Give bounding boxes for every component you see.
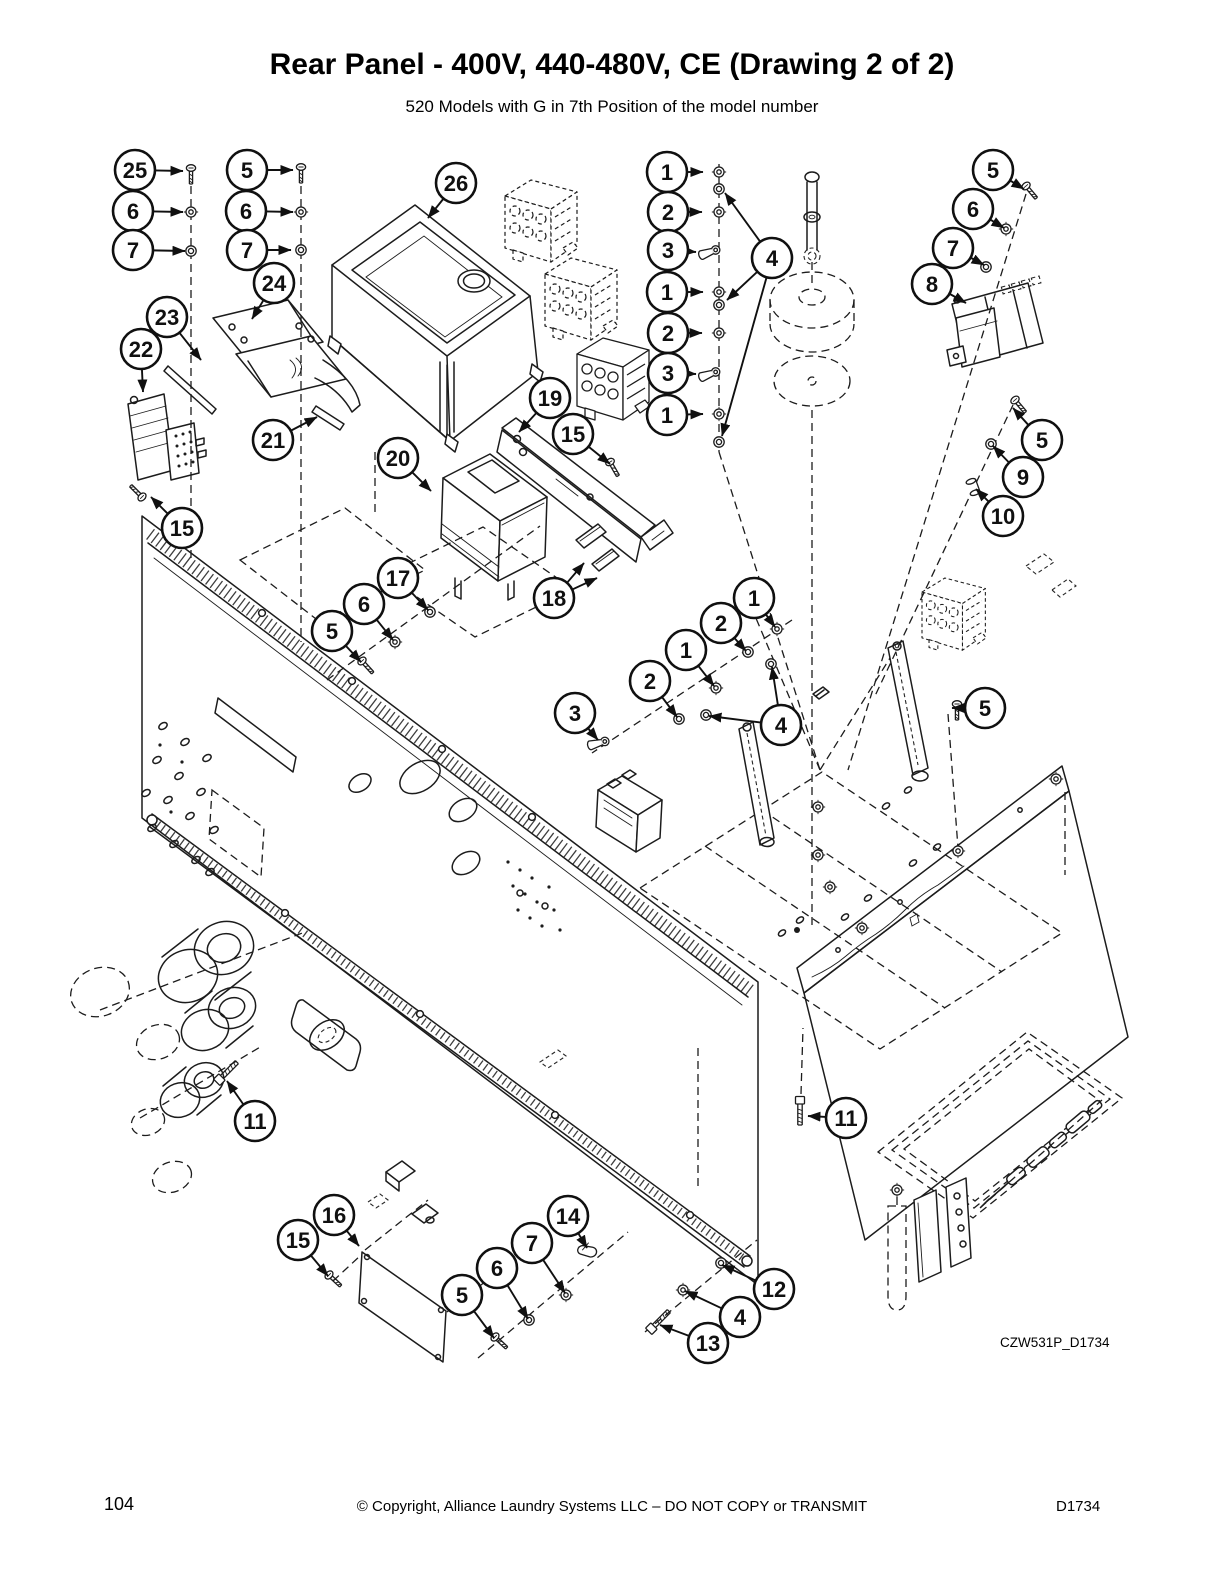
callout-number: 12 [762,1277,786,1302]
callout-leader [151,497,168,514]
callout-leader [428,199,444,218]
callout-number: 5 [326,619,338,644]
callout-leader [722,1265,756,1281]
callout-number: 1 [661,403,673,428]
callout-leader [698,666,714,686]
callout-number: 4 [775,713,788,738]
callout-number: 7 [127,238,139,263]
toroid-filter [770,172,854,406]
callout-number: 22 [129,337,153,362]
callout-number: 1 [661,280,673,305]
callout-number: 2 [662,200,674,225]
callout-leader [567,563,584,583]
callout-leader [990,219,1004,228]
cable-glands [64,913,262,1198]
cover-plate [359,1161,446,1362]
callout-number: 6 [967,197,979,222]
callout-number: 2 [715,611,727,636]
main-rear-panel [142,516,758,1285]
copyright-notice: © Copyright, Alliance Laundry Systems LL… [0,1498,1224,1515]
callout-number: 6 [127,199,139,224]
callout-leader [976,489,989,502]
terminal-block [128,394,206,480]
callout-number: 19 [538,386,562,411]
callout-leader [725,193,760,242]
callout-leader [971,258,984,265]
callout-number: 4 [766,246,779,271]
callout-leader [377,620,393,640]
callout-number: 7 [947,236,959,261]
callout-number: 15 [561,422,585,447]
callout-number: 21 [261,428,285,453]
callout-leader [507,1285,528,1319]
callout-leader [543,1260,565,1293]
callout-number: 25 [123,158,147,183]
callout-leader [1010,180,1024,189]
callout-number: 11 [243,1109,266,1134]
callout-leader [662,697,677,717]
callout-number: 1 [661,160,673,185]
callout-leader [660,1325,689,1336]
callout-leader [153,211,183,212]
callout-leader [685,1291,722,1308]
callout-number: 24 [262,271,287,296]
callout-leader [412,593,428,610]
callout-leader [588,728,598,740]
callout-number: 9 [1017,465,1029,490]
callout-leader [179,333,201,360]
control-transformer [947,276,1043,367]
doc-code: D1734 [1056,1498,1100,1515]
callout-number: 3 [662,238,674,263]
callout-leader [993,446,1009,463]
callout-number: 1 [748,586,760,611]
callout-number: 6 [240,199,252,224]
callout-leader [346,646,361,662]
callout-number: 5 [987,158,999,183]
callout-leader [589,447,610,464]
callout-number: 15 [170,516,194,541]
callout-leader [949,294,966,303]
callout-number: 20 [386,446,410,471]
side-panel [797,766,1128,1240]
callout-leader [227,1081,244,1105]
callout-number: 5 [1036,428,1048,453]
callout-number: 7 [526,1231,538,1256]
callout-number: 4 [734,1305,747,1330]
drawing-code: CZW531P_D1734 [1000,1335,1110,1350]
callout-number: 11 [834,1106,857,1131]
callout-leader [722,277,767,436]
callout-number: 2 [644,669,656,694]
callout-leader [311,1255,328,1276]
callout-leader [153,250,185,251]
callout-leader [727,272,757,300]
callout-number: 23 [155,305,179,330]
callout-leader [766,614,775,627]
callout-number: 2 [662,321,674,346]
callout-leader [412,472,431,491]
callout-number: 5 [456,1283,468,1308]
callout-leader [474,1311,494,1338]
callout-number: 13 [696,1331,720,1356]
callout-number: 16 [322,1203,346,1228]
callout-leader [709,716,761,723]
callout-number: 5 [241,158,253,183]
struts [739,641,928,847]
callout-number: 7 [241,238,253,263]
callout-number: 14 [556,1204,581,1229]
callout-leader [734,638,746,651]
callout-number: 3 [662,361,674,386]
callout-number: 17 [386,566,410,591]
callout-leader [347,1231,359,1246]
callout-number: 26 [444,171,468,196]
callout-leader [155,170,183,171]
callout-leader [572,578,597,590]
callout-number: 15 [286,1228,310,1253]
callout-number: 5 [979,696,991,721]
manual-page: Rear Panel - 400V, 440-480V, CE (Drawing… [0,0,1224,1584]
callout-leader [291,417,317,431]
callout-number: 3 [569,701,581,726]
callout-number: 8 [926,272,938,297]
panel-holes [141,698,566,1071]
callout-leader [266,211,293,212]
ground-rod [164,366,216,414]
callout-number: 18 [542,586,566,611]
sensor-assembly [888,1099,1103,1310]
callout-leader [142,369,143,392]
callout-number: 1 [680,638,692,663]
callout-number: 6 [358,592,370,617]
callout-leader [808,1116,826,1117]
callout-number: 10 [991,504,1015,529]
panel-relay [596,770,662,852]
callout-leader [772,667,778,705]
callout-number: 6 [491,1256,503,1281]
